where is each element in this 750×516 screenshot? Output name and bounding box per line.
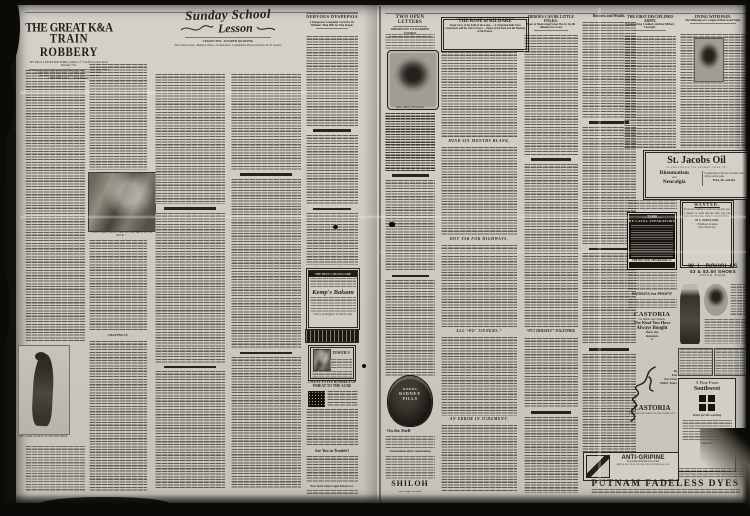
- ad-classified-small: [678, 348, 713, 376]
- headline-great-ka-line2: TRAIN ROBBERY: [25, 33, 113, 60]
- headline-trouble: Are You in Trouble?: [306, 449, 358, 453]
- illegible-subhead: [240, 352, 292, 355]
- army-subhead: Egyptian King Credited with Best Militar…: [624, 23, 676, 29]
- castoria-use-block: In Use For Over Thirty Years: [659, 369, 677, 385]
- illegible-subhead: [313, 129, 351, 132]
- woman-silhouette: [31, 354, 55, 427]
- body-text-block: [441, 52, 517, 138]
- pill-box-graphic: DODDS KIDNEY PILLS: [388, 376, 432, 426]
- wanted-head: WANTED.: [684, 203, 730, 207]
- body-text-block: [306, 456, 358, 483]
- wheat-ad-graphic: [308, 391, 325, 407]
- illustration-caption: SHE CAME SLOWLY DOWN THE PATH.: [14, 435, 72, 438]
- ad-castoria: CASTORIA For Infants and Children. The K…: [627, 311, 677, 447]
- scan-ink-blot: [0, 270, 10, 340]
- body-text-block: [441, 245, 517, 328]
- stjacobs-side-text: It penetrates to the seat of torture and…: [705, 172, 744, 178]
- scan-crease: [20, 90, 360, 95]
- portrait-caption: Mrs. Mary Dimmick: [385, 106, 435, 110]
- ad-st-jacobs-oil: THE EXTERNAL USE OF St. Jacobs Oil IS PR…: [643, 150, 750, 200]
- wanted-addr2: New York City.: [684, 226, 730, 229]
- portrait-man: [694, 38, 724, 82]
- ad-dodds-kidney-pills: DODDS KIDNEY PILLS: [385, 376, 435, 428]
- headline-two-open-letters: TWO OPEN LETTERS: [385, 15, 435, 25]
- illustration-caption: “I GOT SOMETHING COLD ON THE BACK OF MY …: [86, 231, 156, 237]
- scan-speck: [389, 222, 395, 227]
- illegible-subhead: [313, 208, 351, 211]
- scan-background: THE GREAT K&A TRAIN ROBBERY BY PAUL LEIC…: [0, 0, 750, 516]
- douglas-note: UNION MADE: [678, 275, 748, 278]
- headline-mind-six-months: MIND SIX MONTHS BLANK.: [441, 139, 517, 143]
- anti-gripine-sub2: GRIP, BAD COLD, HEADACHE AND NEURALGIA.: [611, 464, 675, 467]
- body-text-block: [25, 70, 85, 342]
- illegible-subhead: [164, 366, 216, 369]
- stjacobs-price: Price, 25c. and 50c.: [705, 179, 744, 182]
- shiloh-name: SHILOH: [385, 480, 435, 489]
- illustration-train-scene: [88, 172, 156, 232]
- illegible-subhead: [240, 173, 292, 176]
- legal-advice-line: New York State Legal Advice Co.: [306, 485, 358, 488]
- lesson-subhead2: Text of the Lesson—Memory Verses—Golden …: [155, 44, 301, 47]
- article-disciplined-army: THE FIRST DISCIPLINED ARMY. Egyptian Kin…: [624, 15, 676, 32]
- illegible-subhead: [164, 207, 216, 210]
- portrait-mrs-mary-dimmick: [390, 53, 436, 107]
- scan-ink-blot: [40, 497, 170, 511]
- body-text-block: [441, 425, 517, 492]
- body-text-block: [627, 200, 677, 210]
- headline-ssl-line2: Lesson: [217, 22, 252, 36]
- heroes-subhead: Heart of Black Angel Street Has Its Up-l…: [524, 23, 578, 29]
- scan-speck: [333, 225, 338, 229]
- body-text-block: [89, 341, 147, 492]
- article-heroes: HEROES CAN BE LITTLE FOLKS. Heart of Bla…: [524, 15, 578, 32]
- scan-crease: [380, 250, 746, 254]
- delaval-footer: THE DE LAVAL SEPARATOR CO.: [629, 259, 675, 262]
- finefarm-line2: Southwest: [681, 386, 733, 392]
- flourish-icon: [256, 24, 276, 34]
- finefarm-slogan: Yours for the working: [681, 414, 733, 418]
- body-text-block: [89, 64, 147, 170]
- headline-patents-for-profit: PATENTS for PROFIT: [627, 292, 677, 296]
- body-text-block: [385, 34, 435, 49]
- page-gutter: [363, 5, 377, 503]
- body-text-block: [312, 371, 352, 378]
- fold-line: [379, 6, 381, 502]
- illegible-subhead: [589, 121, 629, 124]
- headline-nervous-dyspepsia: NERVOUS DYSPEPSIA: [306, 15, 358, 20]
- ad-wl-douglas: W. L. DOUGLAS $3 & $3.50 SHOES UNION MAD…: [678, 264, 748, 346]
- towers-name: TOWER'S: [329, 351, 353, 355]
- lesson-column: [155, 74, 225, 492]
- column: [524, 35, 578, 329]
- castoria-years: Thirty Years: [659, 381, 677, 385]
- scan-streak: [598, 8, 601, 488]
- body-text-block: [385, 436, 435, 449]
- article-sunday-school-lesson: Sunday School Lesson LESSON TEN—FOURTH Q…: [155, 8, 301, 48]
- kemps-name: Kemp's Balsam: [307, 289, 359, 296]
- scan-crease: [20, 215, 746, 219]
- body-text-block: [627, 272, 677, 290]
- illegible-subhead: [531, 411, 571, 414]
- headline-generation: Generation after Generation: [385, 450, 435, 454]
- column: [385, 113, 435, 375]
- article-dying-with-pain: DYING WITH PAIN. The Sufferings of a Cou…: [680, 15, 746, 25]
- headline-disciplined-army: THE FIRST DISCIPLINED ARMY.: [624, 15, 676, 23]
- santa-fe-cross-icon: [699, 395, 715, 411]
- scan-edge-left: [0, 0, 8, 516]
- body-text-block: [627, 299, 677, 309]
- headline-wheat: TWENTY-FIVE BUSHELS OF WHEAT TO THE ACRE: [306, 381, 358, 389]
- headline-heroes: HEROES CAN BE LITTLE FOLKS.: [524, 15, 578, 23]
- illustration-woman-figure: [18, 345, 70, 435]
- woman-hat: [35, 352, 47, 361]
- body-text-block: [441, 337, 517, 416]
- column: [306, 36, 358, 264]
- douglas-figure-graphic: [680, 284, 700, 344]
- body-text-block: [441, 147, 517, 236]
- illegible-subhead: [531, 158, 571, 161]
- lesson-column: [231, 74, 301, 492]
- body-text-block: [327, 391, 358, 407]
- headline-on-the-shelf: On the Shelf: [385, 429, 437, 434]
- flourish-icon: [180, 24, 214, 34]
- body-text-block: [330, 359, 352, 369]
- headline-box-rose-of-kildare: “THE ROSE of KILDARE” Tragic Story of th…: [441, 17, 529, 52]
- dyspepsia-subhead: A Dangerous Complaint Cured by Dr. Willi…: [306, 21, 358, 27]
- headline-hot-tar: HOT TAR FOR HIGHWAYS.: [441, 237, 517, 241]
- ad-small-dark: [306, 330, 358, 342]
- illegible-subhead: [392, 275, 429, 278]
- portrait-frame: [387, 50, 439, 110]
- headline-put-himself-together: “PUT HIMSELF” TOGETHER.: [524, 330, 578, 334]
- headline-po-jinners: ALL “PO’ JINNERS.”: [441, 329, 517, 333]
- body-text-block: [306, 409, 358, 447]
- ad-wanted: WANTED. If you are willing to work we ca…: [680, 200, 734, 268]
- dodds-line3: PILLS: [388, 396, 432, 401]
- lesson-subhead: LESSON TEN—FOURTH QUARTER.: [155, 40, 301, 43]
- article-nervous-dyspepsia: NERVOUS DYSPEPSIA A Dangerous Complaint …: [306, 13, 358, 30]
- body-text-block: [89, 240, 147, 332]
- chapter-heading: CHAPTER XV.: [89, 334, 147, 338]
- kemps-top-line: THE BEST COUGH CURE: [309, 271, 357, 277]
- column: [524, 338, 578, 492]
- ad-kemps-balsam: THE BEST COUGH CURE Kemp's Balsam Sold b…: [306, 268, 360, 330]
- stjacobs-ailment2: Neuralgia: [647, 180, 702, 186]
- page-curl-shadow: [700, 428, 750, 516]
- pain-subhead: The Sufferings of a Couple of Hours Each…: [680, 19, 746, 22]
- castoria-of: of: [627, 338, 677, 341]
- body-text-block: [624, 36, 676, 148]
- castoria-name: CASTORIA: [627, 311, 677, 318]
- scan-edge-top: [0, 0, 750, 6]
- headline-error-in-judgment: AN ERROR IN JUDGMENT.: [441, 417, 517, 421]
- rose-subtitle: Tragic Story of the Exile of the Lakes —…: [444, 25, 526, 34]
- delaval-name: DE LAVAL SEPARATORS: [627, 219, 677, 223]
- page-rule: [385, 13, 746, 14]
- illegible-subhead: [589, 348, 629, 351]
- body-text-block: [704, 319, 746, 344]
- fletcher-signature-graphic: [625, 363, 663, 423]
- body-text-block: [25, 446, 85, 492]
- illegible-subhead: [392, 174, 429, 177]
- body-text-block: [385, 456, 435, 479]
- scan-speck: [362, 364, 366, 368]
- douglas-portrait: [704, 284, 728, 316]
- ad-de-laval-separators: — 35,000 — DE LAVAL SEPARATORS THE DE LA…: [627, 212, 677, 270]
- kemps-bottom-line: Sold by all druggists. 25 and 50 cents.: [307, 314, 359, 317]
- ad-towers-slickers: TOWER'S: [308, 345, 356, 381]
